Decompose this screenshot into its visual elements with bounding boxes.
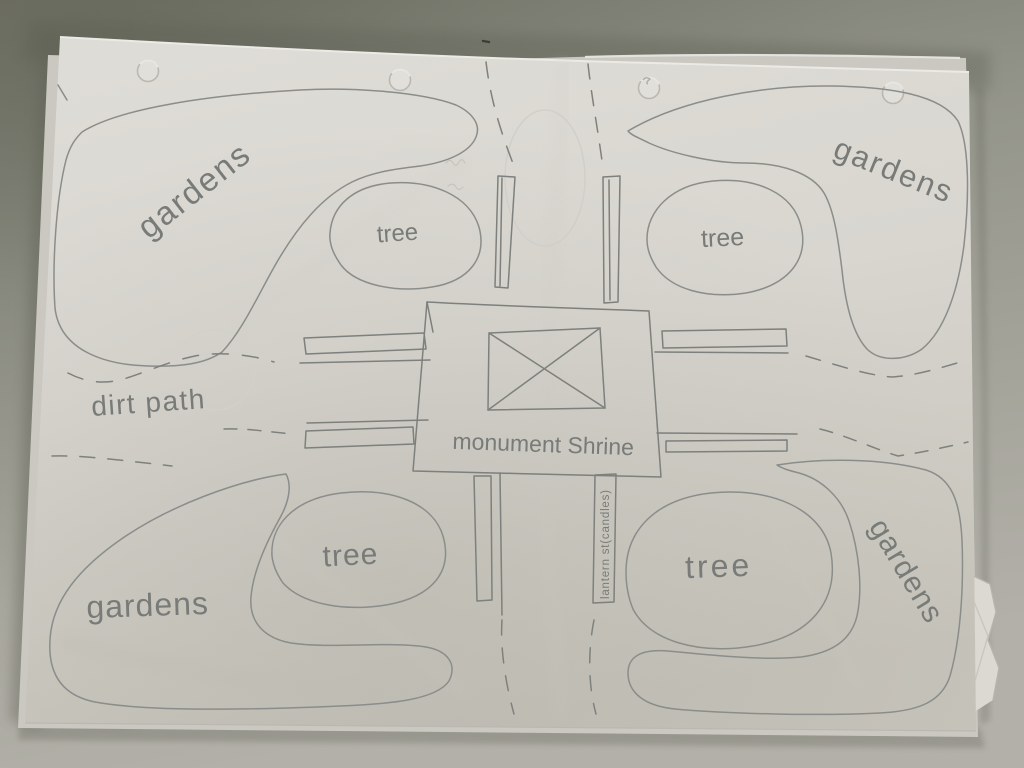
svg-text:tree: tree [684,547,752,585]
svg-text:tree: tree [376,219,419,249]
svg-text:gardens: gardens [86,585,210,625]
svg-text:tree: tree [322,538,379,574]
svg-text:lantern st(candles): lantern st(candles) [600,489,612,599]
svg-text:tree: tree [700,223,745,253]
